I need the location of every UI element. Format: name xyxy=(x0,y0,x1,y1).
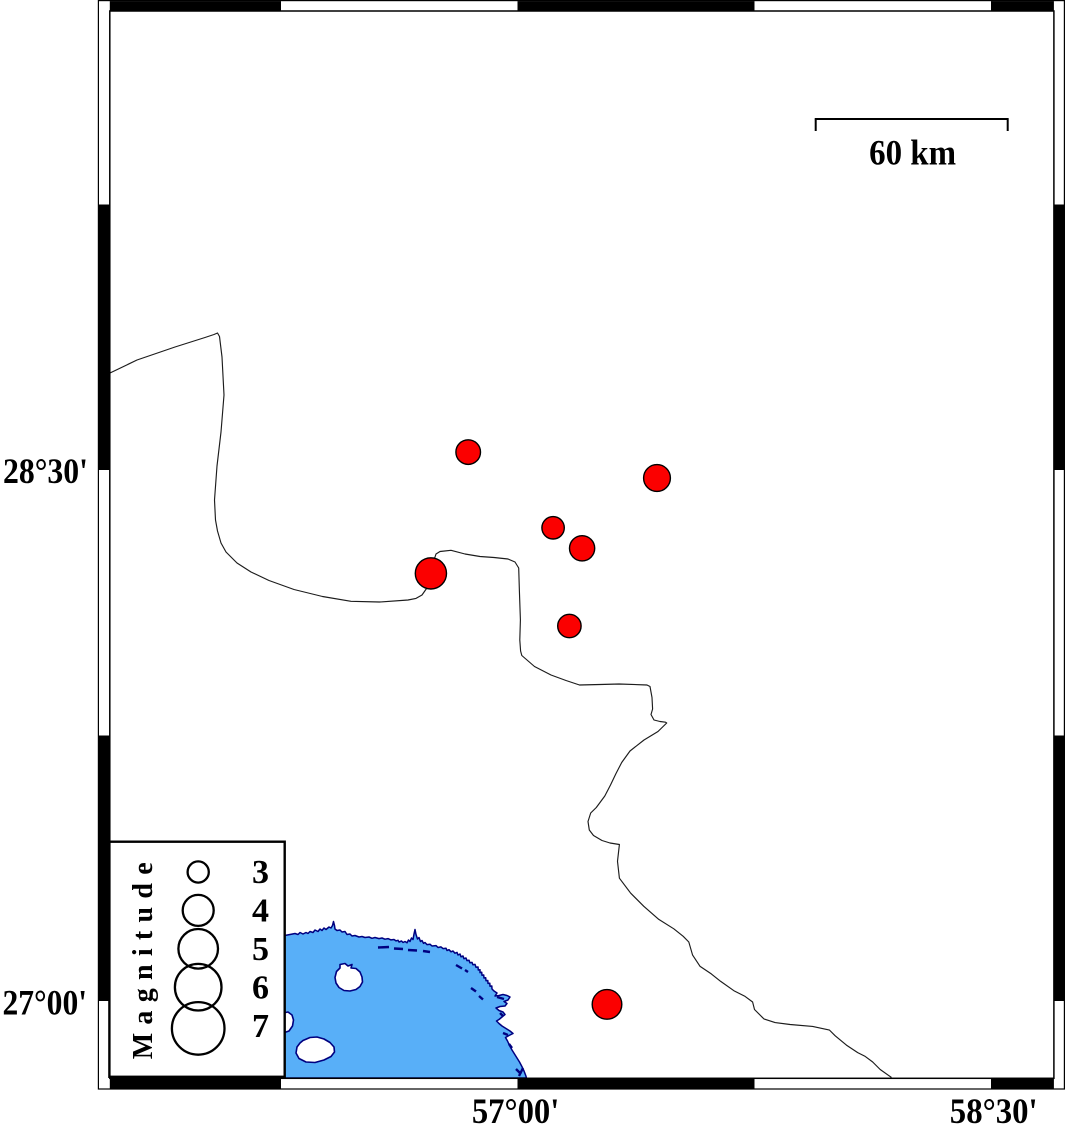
svg-text:7: 7 xyxy=(252,1008,269,1045)
svg-text:5: 5 xyxy=(252,931,269,968)
svg-text:6: 6 xyxy=(252,969,269,1006)
svg-text:4: 4 xyxy=(252,893,269,930)
svg-text:3: 3 xyxy=(252,854,269,891)
svg-text:60 km: 60 km xyxy=(869,133,956,173)
svg-text:58°30': 58°30' xyxy=(950,1091,1038,1127)
svg-text:27°00': 27°00' xyxy=(3,982,88,1022)
svg-text:57°00': 57°00' xyxy=(472,1091,560,1127)
svg-text:28°30': 28°30' xyxy=(3,451,88,491)
